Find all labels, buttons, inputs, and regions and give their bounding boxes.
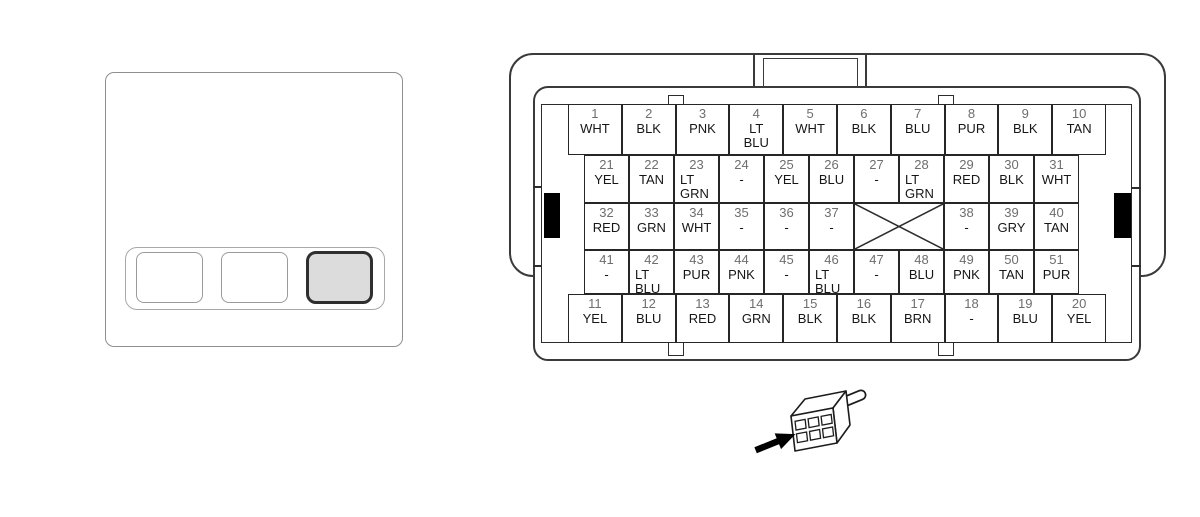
wire-color: RED [677, 312, 729, 327]
crossed-out-icon [855, 204, 943, 249]
wire-color: RED [945, 173, 988, 188]
wire-color: BLK [838, 312, 890, 327]
pin-number: 35 [720, 206, 763, 221]
wire-color: YEL [765, 173, 808, 188]
connector-pinout-diagram: 1WHT2BLK3PNK4LTBLU5WHT6BLK7BLU8PUR9BLK10… [0, 0, 1200, 517]
pin-number: 2 [623, 107, 675, 122]
pin-number: 32 [585, 206, 628, 221]
pin-number: 1 [569, 107, 621, 122]
plug-icon [740, 385, 900, 475]
pin-number: 16 [838, 297, 890, 312]
pin-number: 49 [945, 253, 988, 268]
wire-color: BRN [892, 312, 944, 327]
pin-cell-22: 22TAN [629, 155, 674, 203]
pin-number: 24 [720, 158, 763, 173]
pin-cell-31: 31WHT [1034, 155, 1079, 203]
pin-cell-10: 10TAN [1052, 104, 1106, 155]
pin-cell-38: 38- [944, 203, 989, 250]
pin-cell-18: 18- [945, 294, 999, 343]
pin-cell-16: 16BLK [837, 294, 891, 343]
pin-number: 38 [945, 206, 988, 221]
pin-number: 23 [675, 158, 718, 173]
pin-number: 22 [630, 158, 673, 173]
wire-color: BLU [999, 312, 1051, 327]
pin-number: 51 [1035, 253, 1078, 268]
module-slot-2 [221, 252, 288, 303]
pin-cell-15: 15BLK [783, 294, 837, 343]
pin-number: 7 [892, 107, 944, 122]
wire-color: TAN [1053, 122, 1105, 137]
pin-cell-45: 45- [764, 250, 809, 294]
pin-number: 31 [1035, 158, 1078, 173]
wire-color: TAN [630, 173, 673, 188]
pin-number: 18 [946, 297, 998, 312]
pin-cell-6: 6BLK [837, 104, 891, 155]
wire-color: PUR [946, 122, 998, 137]
pin-number: 46 [810, 253, 853, 268]
wire-color: LTGRN [675, 173, 718, 202]
pin-cell-35: 35- [719, 203, 764, 250]
blocked-cavity-cell [854, 203, 944, 250]
pin-cell-8: 8PUR [945, 104, 999, 155]
pin-cell-51: 51PUR [1034, 250, 1079, 294]
pin-cell-20: 20YEL [1052, 294, 1106, 343]
wire-color: WHT [1035, 173, 1078, 188]
wire-color: BLU [892, 122, 944, 137]
pin-number: 4 [730, 107, 782, 122]
wire-color: - [585, 268, 628, 283]
pin-number: 14 [730, 297, 782, 312]
pin-number: 15 [784, 297, 836, 312]
wire-color: BLK [990, 173, 1033, 188]
pin-number: 48 [900, 253, 943, 268]
shell-notch-line [1131, 187, 1141, 189]
pin-number: 43 [675, 253, 718, 268]
pin-cell-21: 21YEL [584, 155, 629, 203]
pin-cell-50: 50TAN [989, 250, 1034, 294]
pin-number: 34 [675, 206, 718, 221]
pin-number: 11 [569, 297, 621, 312]
pin-cell-12: 12BLU [622, 294, 676, 343]
wire-color: GRN [630, 221, 673, 236]
pin-number: 26 [810, 158, 853, 173]
pin-cell-37: 37- [809, 203, 854, 250]
wire-color: PNK [677, 122, 729, 137]
wire-color: LTGRN [900, 173, 943, 202]
shell-notch-line [533, 265, 542, 267]
pin-cell-1: 1WHT [568, 104, 622, 155]
wire-color: - [765, 268, 808, 283]
pin-cell-5: 5WHT [783, 104, 837, 155]
pin-cell-23: 23LTGRN [674, 155, 719, 203]
pin-cell-30: 30BLK [989, 155, 1034, 203]
pin-number: 33 [630, 206, 673, 221]
shell-notch-line [1131, 265, 1141, 267]
latch-left [544, 193, 560, 238]
pin-cell-14: 14GRN [729, 294, 783, 343]
pin-cell-43: 43PUR [674, 250, 719, 294]
pin-cell-34: 34WHT [674, 203, 719, 250]
pin-number: 36 [765, 206, 808, 221]
wire-color: BLK [999, 122, 1051, 137]
pin-number: 5 [784, 107, 836, 122]
wire-color: BLU [810, 173, 853, 188]
arrow-icon [752, 426, 798, 458]
wire-color: PNK [945, 268, 988, 283]
wire-color: WHT [675, 221, 718, 236]
pin-cell-29: 29RED [944, 155, 989, 203]
pin-number: 37 [810, 206, 853, 221]
pin-cell-46: 46LTBLU [809, 250, 854, 294]
pin-number: 25 [765, 158, 808, 173]
pin-cell-39: 39GRY [989, 203, 1034, 250]
pin-cell-24: 24- [719, 155, 764, 203]
pin-number: 3 [677, 107, 729, 122]
wire-color: YEL [1053, 312, 1105, 327]
pin-cell-13: 13RED [676, 294, 730, 343]
pin-number: 29 [945, 158, 988, 173]
wire-color: - [945, 221, 988, 236]
pin-cell-17: 17BRN [891, 294, 945, 343]
pin-cell-28: 28LTGRN [899, 155, 944, 203]
pin-cell-47: 47- [854, 250, 899, 294]
wire-color: BLK [838, 122, 890, 137]
pin-cell-41: 41- [584, 250, 629, 294]
wire-color: - [855, 268, 898, 283]
wire-color: - [855, 173, 898, 188]
wire-color: - [810, 221, 853, 236]
pin-number: 27 [855, 158, 898, 173]
pin-number: 41 [585, 253, 628, 268]
connector-top-lock-tab-inner [763, 58, 858, 87]
module-slot-3-highlighted [306, 251, 373, 304]
wire-color: PUR [675, 268, 718, 283]
wire-color: BLK [784, 312, 836, 327]
pin-cell-11: 11YEL [568, 294, 622, 343]
index-tab [668, 342, 684, 356]
pin-cell-2: 2BLK [622, 104, 676, 155]
pin-number: 50 [990, 253, 1033, 268]
wire-color: - [720, 173, 763, 188]
pin-number: 8 [946, 107, 998, 122]
pin-cell-32: 32RED [584, 203, 629, 250]
pin-number: 28 [900, 158, 943, 173]
pin-cell-25: 25YEL [764, 155, 809, 203]
pin-number: 30 [990, 158, 1033, 173]
wire-color: - [720, 221, 763, 236]
pin-cell-27: 27- [854, 155, 899, 203]
wire-color: TAN [1035, 221, 1078, 236]
wire-color: LTBLU [630, 268, 673, 297]
wire-color: BLU [623, 312, 675, 327]
pin-cell-36: 36- [764, 203, 809, 250]
pin-cell-33: 33GRN [629, 203, 674, 250]
wire-color: LTBLU [810, 268, 853, 297]
pin-number: 39 [990, 206, 1033, 221]
pin-cell-9: 9BLK [998, 104, 1052, 155]
pin-number: 44 [720, 253, 763, 268]
pin-number: 13 [677, 297, 729, 312]
pin-cell-7: 7BLU [891, 104, 945, 155]
wire-color: YEL [585, 173, 628, 188]
pin-number: 20 [1053, 297, 1105, 312]
pin-number: 21 [585, 158, 628, 173]
pin-cell-40: 40TAN [1034, 203, 1079, 250]
wire-color: GRN [730, 312, 782, 327]
wire-color: - [765, 221, 808, 236]
pin-cell-42: 42LTBLU [629, 250, 674, 294]
pin-cell-4: 4LTBLU [729, 104, 783, 155]
wire-color: WHT [784, 122, 836, 137]
wire-color: TAN [990, 268, 1033, 283]
shell-notch-line [533, 186, 542, 188]
wire-color: LTBLU [730, 122, 782, 151]
wire-color: WHT [569, 122, 621, 137]
pin-number: 12 [623, 297, 675, 312]
pin-number: 6 [838, 107, 890, 122]
pin-number: 17 [892, 297, 944, 312]
pin-cell-49: 49PNK [944, 250, 989, 294]
pin-cell-19: 19BLU [998, 294, 1052, 343]
pin-number: 9 [999, 107, 1051, 122]
pin-cell-26: 26BLU [809, 155, 854, 203]
wire-color: BLU [900, 268, 943, 283]
module-slot-1 [136, 252, 203, 303]
pin-number: 42 [630, 253, 673, 268]
pin-cell-48: 48BLU [899, 250, 944, 294]
pin-number: 40 [1035, 206, 1078, 221]
wire-color: GRY [990, 221, 1033, 236]
pin-number: 10 [1053, 107, 1105, 122]
wire-color: PUR [1035, 268, 1078, 283]
latch-right [1114, 193, 1131, 238]
pin-number: 47 [855, 253, 898, 268]
wire-color: PNK [720, 268, 763, 283]
pin-number: 45 [765, 253, 808, 268]
index-tab [938, 342, 954, 356]
pin-number: 19 [999, 297, 1051, 312]
pin-cell-3: 3PNK [676, 104, 730, 155]
pin-cell-44: 44PNK [719, 250, 764, 294]
wire-color: BLK [623, 122, 675, 137]
wire-color: - [946, 312, 998, 327]
wire-color: RED [585, 221, 628, 236]
wire-color: YEL [569, 312, 621, 327]
